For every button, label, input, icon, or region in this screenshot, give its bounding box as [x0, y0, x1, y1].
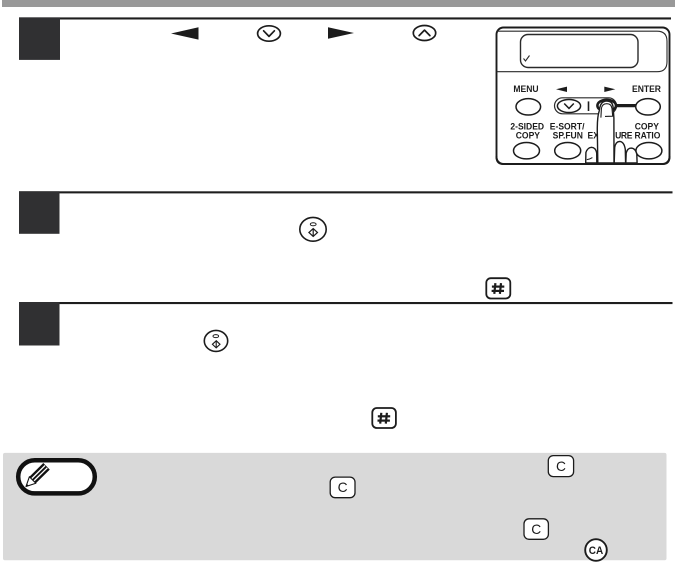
svg-text:C: C — [338, 480, 348, 495]
svg-text:MENU: MENU — [513, 84, 538, 94]
svg-text:RATIO: RATIO — [634, 130, 660, 140]
svg-text:CA: CA — [589, 545, 604, 558]
svg-text:C: C — [556, 459, 566, 474]
svg-text:SP.FUN: SP.FUN — [553, 130, 583, 140]
svg-text:COPY: COPY — [516, 130, 540, 140]
svg-text:ENTER: ENTER — [632, 84, 662, 94]
svg-text:URE: URE — [615, 130, 632, 140]
svg-text:C: C — [531, 522, 541, 537]
